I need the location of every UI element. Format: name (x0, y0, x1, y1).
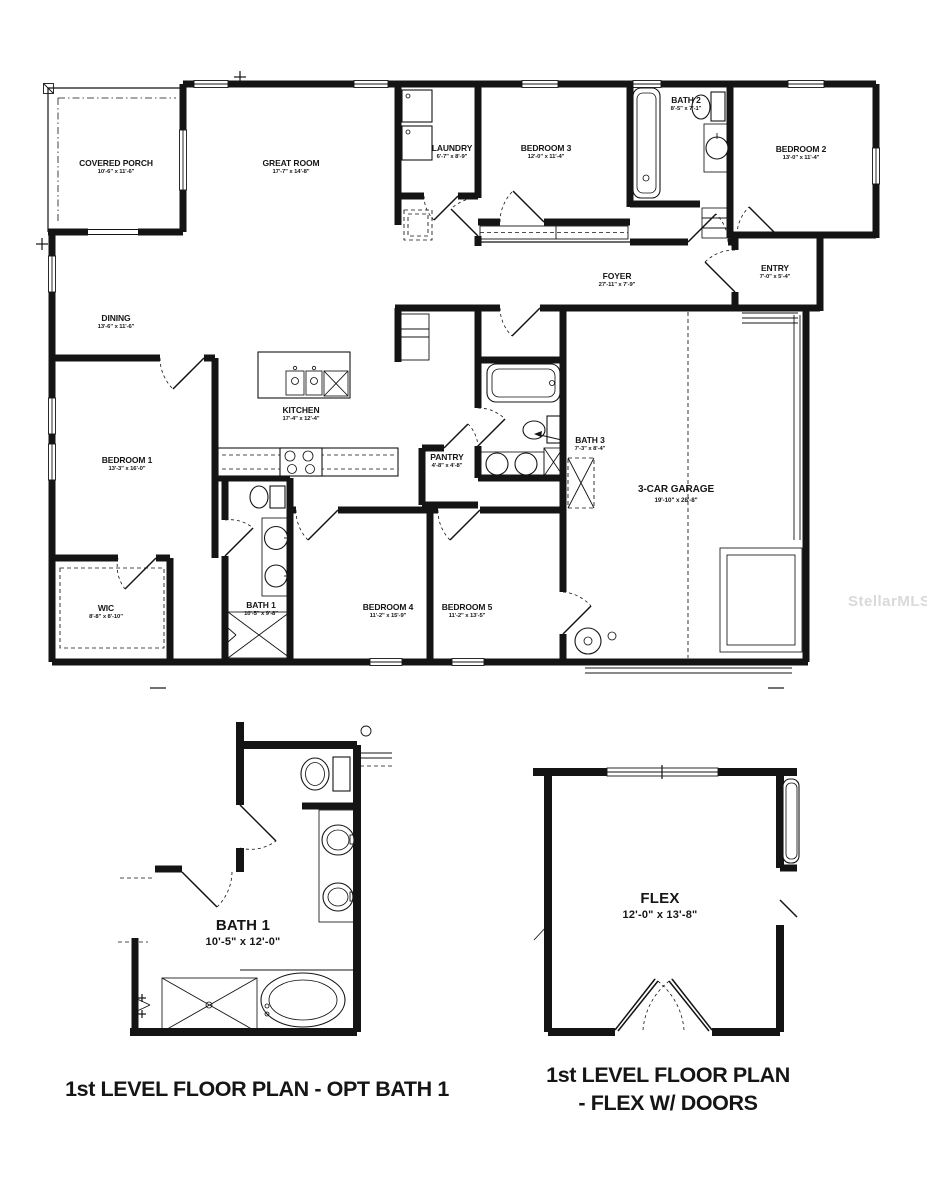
room-label-wic: WIC8'-8" x 8'-10" (89, 603, 123, 621)
bath3-fixtures (480, 364, 566, 477)
bath1-main-fixtures (228, 486, 290, 658)
caption-opt-bath-1: 1st LEVEL FLOOR PLAN - OPT BATH 1 (65, 1076, 449, 1104)
room-label-covered-porch: COVERED PORCH10'-6" x 11'-6" (79, 158, 153, 176)
room-label-laundry: LAUNDRY6'-7" x 8'-9" (432, 143, 473, 161)
room-label-bath-3: BATH 37'-3" x 8'-4" (575, 435, 606, 453)
entry-steps (742, 313, 798, 323)
room-label-bedroom-5: BEDROOM 511'-2" x 13'-5" (442, 602, 493, 620)
room-label-bedroom-2: BEDROOM 213'-0" x 11'-4" (776, 144, 827, 162)
laundry-appliances (402, 90, 432, 240)
room-label-bedroom-1: BEDROOM 113'-3" x 16'-0" (102, 455, 153, 473)
watermark: StellarMLS (848, 593, 927, 610)
room-label-bath-1: BATH 110'-5" x 9'-8" (244, 600, 278, 618)
floorplan-page: COVERED PORCH10'-6" x 11'-6" GREAT ROOM1… (0, 0, 927, 1200)
flex-double-doors (615, 979, 712, 1031)
opt-bath1-walls (118, 722, 392, 1032)
room-label-foyer: FOYER27'-11" x 7'-9" (599, 271, 636, 289)
floorplan-drawing (0, 0, 927, 1200)
room-label-bedroom-3: BEDROOM 312'-0" x 11'-4" (521, 143, 572, 161)
room-label-dining: DINING13'-6" x 11'-6" (98, 313, 135, 331)
room-label-kitchen: KITCHEN17'-4" x 12'-4" (282, 405, 319, 423)
caption-flex: 1st LEVEL FLOOR PLAN - FLEX W/ DOORS (546, 1062, 790, 1118)
room-label-pantry: PANTRY4'-8" x 4'-8" (430, 452, 463, 470)
detail-label-opt-bath-1: BATH 110'-5" x 12'-0" (206, 917, 281, 950)
room-label-bedroom-4: BEDROOM 411'-2" x 15'-9" (363, 602, 414, 620)
opt-bath1-fixtures (135, 757, 357, 1032)
main-interior-walls (52, 84, 820, 662)
room-label-great-room: GREAT ROOM17'-7" x 14'-8" (263, 158, 320, 176)
detail-label-flex: FLEX12'-0" x 13'-8" (623, 890, 698, 923)
room-label-entry: ENTRY7'-0" x 5'-4" (760, 263, 791, 281)
room-label-garage: 3-CAR GARAGE19'-10" x 28'-8" (638, 484, 714, 504)
room-label-bath-2: BATH 28'-5" x 7'-1" (671, 95, 702, 113)
